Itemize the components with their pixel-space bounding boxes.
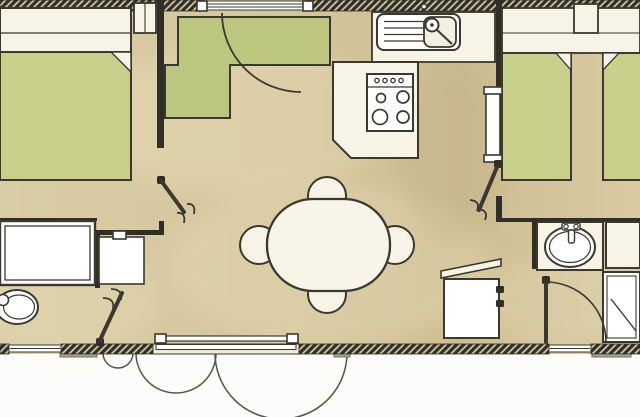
- wall-knob: [422, 4, 427, 9]
- floor-plan-canvas: [0, 0, 640, 417]
- window-bottom-right: [549, 345, 591, 352]
- nightstand: [574, 4, 598, 33]
- cabinet-body: [444, 279, 499, 338]
- bathtub: [0, 221, 95, 285]
- twin-bed-right: [603, 53, 640, 180]
- wall-wc-stub: [159, 221, 164, 231]
- sliding-patio-door: [153, 334, 299, 354]
- four-burner-stove: [367, 74, 413, 131]
- hinge-top: [496, 286, 504, 293]
- double-bed-blanket: [0, 52, 131, 180]
- flush-button: [0, 295, 9, 306]
- vanity-unit: [99, 231, 144, 284]
- wall-bottom-2: [61, 344, 153, 354]
- floor-plan-drawing: [0, 0, 640, 417]
- twin-bed-left: [502, 53, 571, 180]
- wall-bottom-3: [299, 344, 549, 354]
- headboard-shelf: [502, 8, 640, 53]
- wall-bottom-4: [591, 344, 640, 354]
- side-cabinet: [606, 222, 640, 268]
- faucet-spout: [569, 230, 575, 243]
- window-bottom-left: [9, 345, 61, 352]
- vanity-knob: [113, 231, 126, 239]
- wall-master-kids: [157, 0, 164, 148]
- toilet: [0, 290, 38, 324]
- oval-table: [267, 199, 390, 291]
- shower: [603, 272, 640, 342]
- hinge-bottom: [496, 300, 504, 307]
- wardrobe: [484, 87, 502, 162]
- window-top: [197, 1, 313, 11]
- wall-wc-top: [97, 230, 164, 235]
- wall-bottom-1: [0, 344, 9, 354]
